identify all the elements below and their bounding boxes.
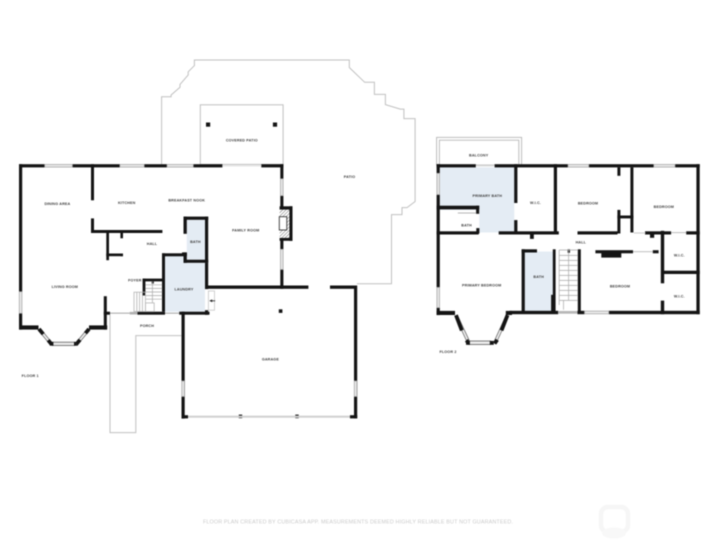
svg-text:FAMILY ROOM: FAMILY ROOM: [232, 228, 259, 232]
svg-text:LIVING ROOM: LIVING ROOM: [52, 285, 78, 289]
svg-text:FLOOR 2: FLOOR 2: [439, 350, 456, 354]
svg-text:HALL: HALL: [147, 242, 158, 246]
svg-text:BEDROOM: BEDROOM: [654, 205, 674, 209]
svg-text:FLOOR PLAN CREATED BY CUBICASA: FLOOR PLAN CREATED BY CUBICASA APP. MEAS…: [203, 520, 513, 526]
svg-text:BREAKFAST NOOK: BREAKFAST NOOK: [168, 198, 205, 202]
svg-text:GARAGE: GARAGE: [262, 358, 279, 362]
svg-text:W.I.C.: W.I.C.: [674, 254, 685, 258]
svg-text:BEDROOM: BEDROOM: [610, 285, 630, 289]
svg-text:COVERED PATIO: COVERED PATIO: [226, 138, 258, 142]
svg-text:HALL: HALL: [576, 240, 587, 244]
svg-text:PATIO: PATIO: [344, 175, 355, 179]
svg-text:PRIMARY BATH: PRIMARY BATH: [473, 194, 503, 198]
svg-text:KITCHEN: KITCHEN: [118, 201, 136, 205]
svg-text:FLOOR 1: FLOOR 1: [22, 374, 39, 378]
svg-text:BALCONY: BALCONY: [469, 154, 489, 158]
svg-text:DINING AREA: DINING AREA: [44, 202, 70, 206]
svg-text:LAUNDRY: LAUNDRY: [175, 288, 194, 292]
svg-text:BATH: BATH: [533, 275, 544, 279]
svg-text:PORCH: PORCH: [140, 324, 154, 328]
svg-text:BEDROOM: BEDROOM: [578, 202, 598, 206]
svg-text:BATH: BATH: [461, 224, 472, 228]
svg-text:FOYER: FOYER: [128, 279, 142, 283]
svg-text:PRIMARY BEDROOM: PRIMARY BEDROOM: [462, 284, 501, 288]
svg-text:BATH: BATH: [190, 240, 201, 244]
svg-text:W.I.C.: W.I.C.: [674, 295, 685, 299]
svg-text:W.I.C.: W.I.C.: [530, 201, 541, 205]
